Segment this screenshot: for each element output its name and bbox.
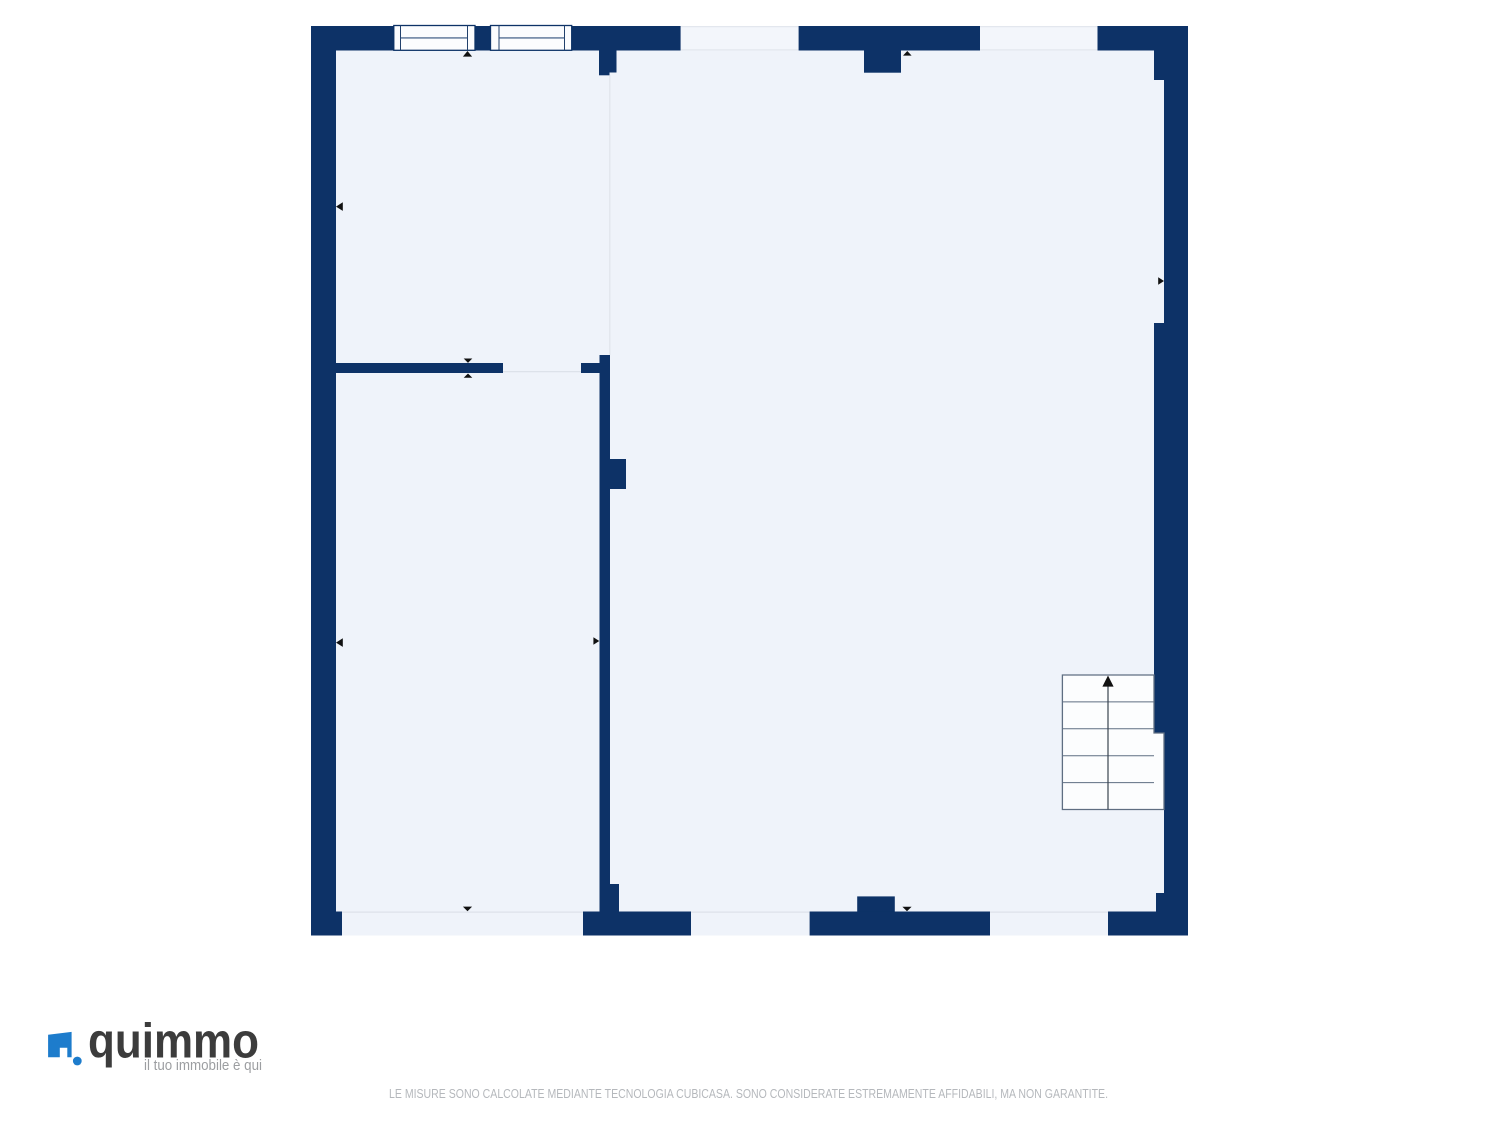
svg-text:il tuo immobile è qui: il tuo immobile è qui xyxy=(144,1057,262,1074)
svg-text:LE MISURE SONO CALCOLATE MEDIA: LE MISURE SONO CALCOLATE MEDIANTE TECNOL… xyxy=(389,1086,1108,1101)
